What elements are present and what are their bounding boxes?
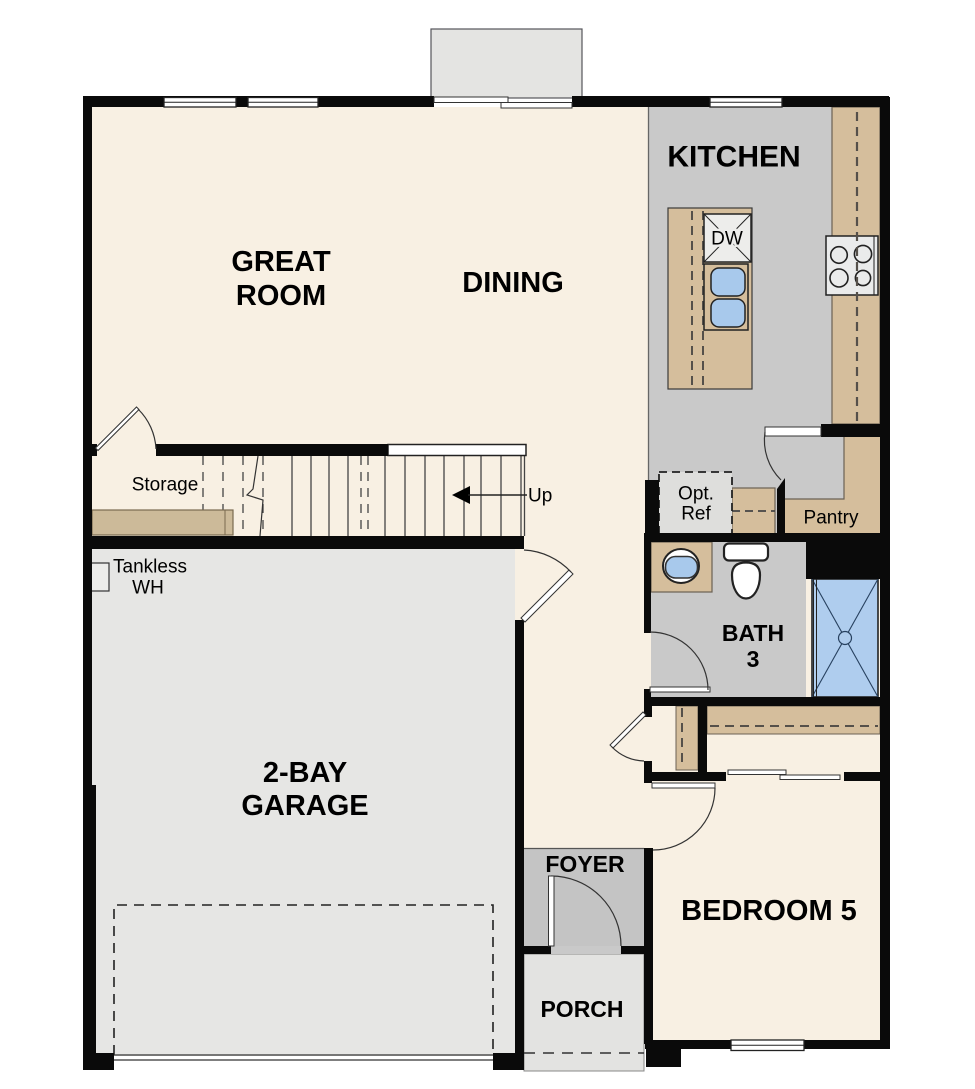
- svg-text:GARAGE: GARAGE: [241, 790, 368, 822]
- svg-text:ROOM: ROOM: [236, 280, 326, 312]
- svg-text:3: 3: [747, 646, 760, 672]
- svg-text:Storage: Storage: [132, 475, 199, 496]
- svg-text:DINING: DINING: [462, 267, 564, 299]
- svg-text:Up: Up: [528, 486, 552, 507]
- svg-text:BATH: BATH: [722, 620, 784, 646]
- svg-text:FOYER: FOYER: [545, 851, 625, 877]
- svg-text:BEDROOM 5: BEDROOM 5: [681, 895, 857, 927]
- svg-text:KITCHEN: KITCHEN: [667, 141, 800, 174]
- svg-text:GREAT: GREAT: [231, 246, 331, 278]
- svg-text:2-BAY: 2-BAY: [263, 757, 347, 789]
- svg-text:DW: DW: [711, 229, 743, 250]
- svg-text:Pantry: Pantry: [804, 508, 859, 529]
- svg-text:Tankless: Tankless: [113, 557, 187, 578]
- svg-text:Opt.: Opt.: [678, 484, 714, 505]
- svg-text:WH: WH: [132, 578, 164, 599]
- svg-text:Ref: Ref: [681, 504, 711, 525]
- svg-text:PORCH: PORCH: [540, 996, 623, 1022]
